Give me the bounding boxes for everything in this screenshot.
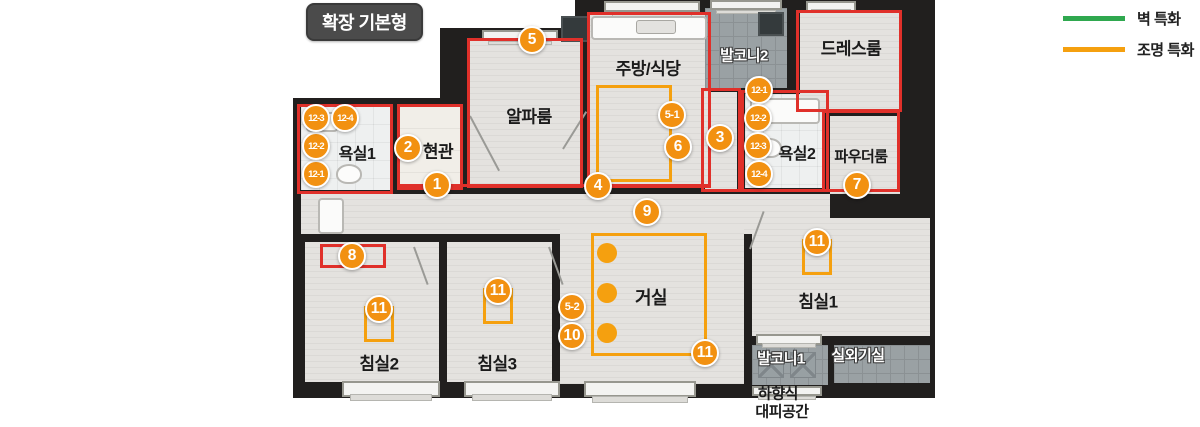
- room-label: 욕실2: [779, 140, 816, 164]
- marker-badge: 11: [365, 295, 393, 323]
- marker-badge: 7: [843, 171, 871, 199]
- room-label: 대피공간: [755, 401, 808, 422]
- marker-badge: 8: [338, 242, 366, 270]
- marker-badge: 12-4: [331, 104, 359, 132]
- wall-feature-line-swatch: [1063, 16, 1125, 21]
- marker-badge: 5-1: [658, 101, 686, 129]
- light-dot: [597, 283, 617, 303]
- marker-badge: 11: [803, 228, 831, 256]
- legend: 벽 특화 조명 특화: [1063, 8, 1194, 70]
- marker-badge: 11: [484, 277, 512, 305]
- marker-badge: 6: [664, 133, 692, 161]
- fixture-shaft: [758, 12, 784, 36]
- marker-badge: 5: [518, 26, 546, 54]
- marker-badge: 12-1: [745, 76, 773, 104]
- light-dot: [597, 243, 617, 263]
- room-label: 침실2: [359, 350, 398, 375]
- window: [342, 381, 440, 397]
- room-label: 발코니2: [720, 45, 768, 66]
- plan-type-badge: 확장 기본형: [306, 3, 423, 41]
- room-label: 현관: [423, 138, 453, 163]
- marker-badge: 10: [558, 322, 586, 350]
- room-label: 침실3: [477, 350, 516, 375]
- window: [584, 381, 696, 397]
- legend-row-lighting: 조명 특화: [1063, 39, 1194, 60]
- marker-badge: 1: [423, 171, 451, 199]
- marker-badge: 2: [394, 134, 422, 162]
- marker-badge: 12-2: [302, 132, 330, 160]
- room-label: 파우더룸: [834, 146, 887, 167]
- room-floor: [752, 218, 930, 336]
- room-label: 알파룸: [506, 103, 551, 128]
- room-label: 주방/식당: [616, 55, 681, 80]
- room-label: 발코니1: [757, 348, 805, 369]
- legend-label-wall: 벽 특화: [1137, 8, 1181, 29]
- marker-badge: 12-3: [302, 104, 330, 132]
- marker-badge: 11: [691, 339, 719, 367]
- marker-badge: 12-2: [744, 104, 772, 132]
- window: [604, 1, 700, 12]
- marker-badge: 4: [584, 172, 612, 200]
- legend-label-lighting: 조명 특화: [1137, 39, 1194, 60]
- floor-plan: 확장 기본형 벽 특화 조명 특화 욕실1현관알파룸주방/식당발코니2드레스룸욕…: [0, 0, 1200, 427]
- lighting-feature-line-swatch: [1063, 47, 1125, 52]
- window: [710, 0, 782, 10]
- marker-badge: 9: [633, 198, 661, 226]
- room-label: 드레스룸: [821, 35, 882, 60]
- marker-badge: 12-1: [302, 160, 330, 188]
- marker-badge: 12-4: [745, 160, 773, 188]
- window: [464, 381, 560, 397]
- light-dot: [597, 323, 617, 343]
- room-label: 실외기실: [831, 345, 884, 366]
- room-label: 거실: [635, 284, 667, 310]
- wall-highlight-outline: [796, 10, 902, 112]
- marker-badge: 12-3: [744, 132, 772, 160]
- window: [756, 334, 822, 345]
- room-label: 욕실1: [339, 140, 376, 164]
- room-label: 침실1: [798, 288, 837, 313]
- fixture-white: [318, 198, 344, 234]
- marker-badge: 5-2: [558, 293, 586, 321]
- legend-row-wall: 벽 특화: [1063, 8, 1194, 29]
- marker-badge: 3: [706, 124, 734, 152]
- lighting-zone-outline: [596, 85, 672, 182]
